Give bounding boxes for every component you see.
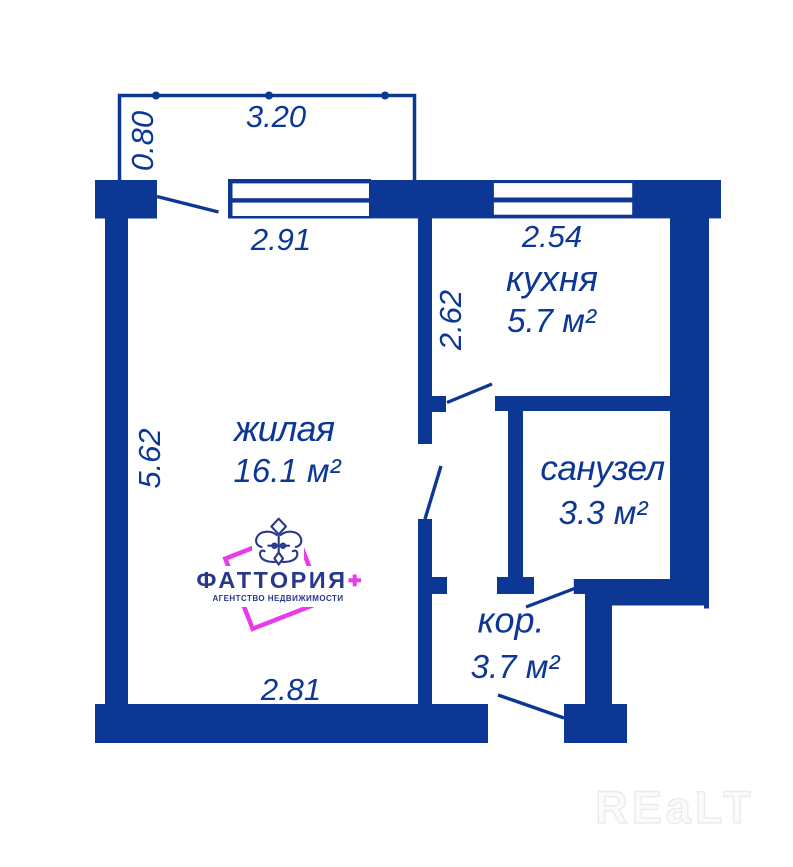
svg-text:2.91: 2.91 (250, 222, 311, 257)
svg-text:2.54: 2.54 (521, 219, 582, 254)
svg-text:2.81: 2.81 (260, 672, 321, 707)
svg-text:16.1 м²: 16.1 м² (233, 452, 341, 489)
svg-text:санузел: санузел (540, 449, 665, 488)
svg-text:жилая: жилая (232, 408, 335, 449)
svg-text:3.3 м²: 3.3 м² (559, 494, 649, 531)
svg-text:0.80: 0.80 (125, 111, 160, 171)
svg-text:3.7 м²: 3.7 м² (471, 648, 561, 685)
svg-text:5.62: 5.62 (132, 428, 167, 488)
svg-text:АГЕНТСТВО НЕДВИЖИМОСТИ: АГЕНТСТВО НЕДВИЖИМОСТИ (212, 594, 343, 603)
svg-text:REaLT: REaLT (595, 782, 754, 833)
svg-text:2.62: 2.62 (433, 290, 468, 351)
svg-text:3.20: 3.20 (246, 99, 306, 134)
svg-text:кухня: кухня (506, 258, 598, 299)
svg-text:5.7 м²: 5.7 м² (507, 302, 597, 339)
svg-text:ФАТТОРИЯ: ФАТТОРИЯ (196, 567, 347, 593)
svg-text:кор.: кор. (477, 600, 544, 641)
